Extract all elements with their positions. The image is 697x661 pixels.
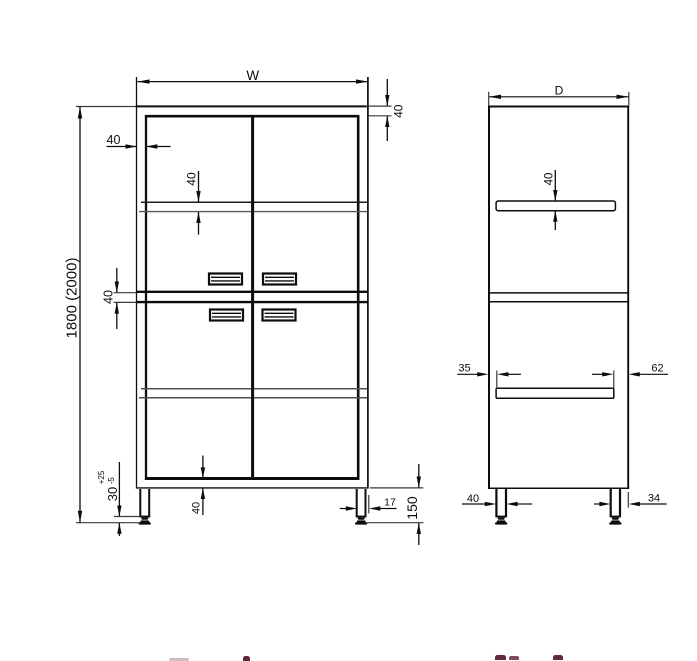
svg-text:40: 40 xyxy=(392,104,406,118)
svg-text:40: 40 xyxy=(101,290,115,304)
svg-text:40: 40 xyxy=(191,502,203,514)
svg-text:62: 62 xyxy=(651,362,663,374)
svg-text:-5: -5 xyxy=(107,477,116,485)
svg-text:1800 (2000): 1800 (2000) xyxy=(64,258,81,339)
svg-text:40: 40 xyxy=(185,172,199,186)
svg-text:D: D xyxy=(555,84,564,98)
svg-text:150: 150 xyxy=(404,496,420,520)
svg-text:35: 35 xyxy=(458,362,470,374)
svg-text:+25: +25 xyxy=(97,470,106,484)
svg-text:40: 40 xyxy=(543,173,555,186)
svg-text:40: 40 xyxy=(107,133,121,147)
svg-text:30: 30 xyxy=(105,487,120,501)
svg-text:W: W xyxy=(246,68,259,83)
svg-text:17: 17 xyxy=(384,497,396,509)
svg-text:40: 40 xyxy=(467,493,479,505)
svg-text:34: 34 xyxy=(648,492,660,504)
